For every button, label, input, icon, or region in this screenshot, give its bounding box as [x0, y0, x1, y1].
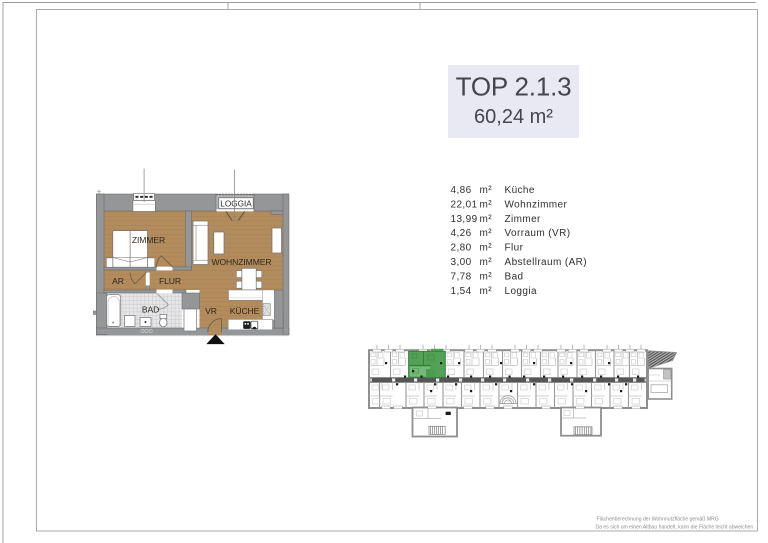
- svg-text:m²: m²: [480, 257, 493, 268]
- svg-text:m²: m²: [480, 185, 493, 196]
- svg-text:Bad: Bad: [505, 271, 524, 282]
- svg-text:4,26: 4,26: [451, 228, 472, 239]
- svg-text:3,00: 3,00: [451, 257, 472, 268]
- svg-text:LOGGIA: LOGGIA: [220, 200, 252, 209]
- svg-text:13,99: 13,99: [451, 214, 478, 225]
- svg-text:AR: AR: [112, 276, 124, 286]
- svg-text:Zimmer: Zimmer: [505, 214, 542, 225]
- svg-text:m²: m²: [480, 271, 493, 282]
- svg-text:ZIMMER: ZIMMER: [132, 235, 165, 245]
- svg-text:1,54: 1,54: [451, 286, 472, 297]
- svg-text:Küche: Küche: [505, 185, 535, 196]
- svg-text:2,80: 2,80: [451, 243, 472, 254]
- svg-text:Wohnzimmer: Wohnzimmer: [505, 199, 568, 210]
- svg-text:KÜCHE: KÜCHE: [230, 306, 260, 316]
- svg-text:FLUR: FLUR: [159, 276, 181, 286]
- svg-text:Flur: Flur: [505, 243, 524, 254]
- svg-text:m²: m²: [480, 243, 493, 254]
- svg-text:Abstellraum (AR): Abstellraum (AR): [505, 257, 588, 268]
- svg-text:Da es sich um einen Altbau han: Da es sich um einen Altbau handelt, kann…: [596, 524, 754, 530]
- svg-text:WOHNZIMMER: WOHNZIMMER: [211, 257, 271, 267]
- svg-text:60,24 m²: 60,24 m²: [474, 106, 553, 128]
- svg-text:m²: m²: [480, 228, 493, 239]
- svg-text:Flächenberechnung der Wohnnutz: Flächenberechnung der Wohnnutzfläche gem…: [597, 516, 719, 522]
- svg-text:m²: m²: [480, 286, 493, 297]
- svg-text:TOP 2.1.3: TOP 2.1.3: [456, 72, 572, 102]
- svg-text:22,01: 22,01: [451, 199, 478, 210]
- svg-text:VR: VR: [205, 306, 217, 316]
- svg-text:m²: m²: [480, 214, 493, 225]
- svg-text:BAD: BAD: [142, 305, 159, 315]
- svg-text:m²: m²: [480, 199, 493, 210]
- svg-text:Loggia: Loggia: [505, 286, 537, 297]
- svg-text:4,86: 4,86: [451, 185, 472, 196]
- svg-text:Vorraum (VR): Vorraum (VR): [505, 228, 571, 239]
- svg-text:7,78: 7,78: [451, 271, 472, 282]
